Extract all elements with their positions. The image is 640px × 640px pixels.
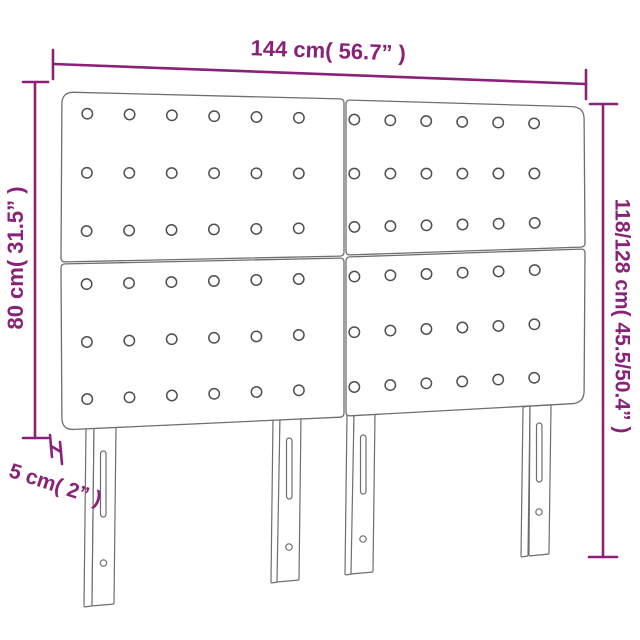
headboard-legs xyxy=(84,405,551,607)
headboard-panels xyxy=(61,92,585,429)
tufting-button xyxy=(421,378,431,388)
tufting-button xyxy=(124,392,134,402)
tufting-button xyxy=(349,327,359,337)
tufting-button xyxy=(421,168,431,178)
headboard-leg xyxy=(521,405,551,557)
tufting-button xyxy=(124,278,134,288)
dimension-depth-tick-right xyxy=(60,442,62,464)
tufting-button xyxy=(167,334,177,344)
tufting-button xyxy=(251,224,261,234)
leg-slot xyxy=(361,435,367,494)
tufting-button xyxy=(529,168,539,178)
tufting-button xyxy=(124,225,134,235)
tufting-button xyxy=(457,219,467,229)
tufting-button xyxy=(251,275,261,285)
tufting-button xyxy=(349,222,359,232)
tufting-button xyxy=(124,109,134,119)
headboard-dimension-diagram: 144 cm( 56.7” ) 80 cm( 31.5” ) 118/128 c… xyxy=(0,0,640,640)
leg-screw-hole xyxy=(100,560,106,566)
leg-screw-hole xyxy=(360,536,366,542)
tufting-button xyxy=(457,322,467,332)
leg-screw-hole xyxy=(536,509,542,515)
tufting-button xyxy=(385,168,395,178)
leg-slot xyxy=(287,438,293,499)
tufting-button xyxy=(385,115,395,125)
tufting-button xyxy=(385,325,395,335)
tufting-button xyxy=(82,168,92,178)
leg-screw-hole xyxy=(286,544,292,550)
tufting-button xyxy=(493,168,503,178)
headboard-leg xyxy=(271,415,301,583)
tufting-button xyxy=(82,109,92,119)
tufting-button xyxy=(349,114,359,124)
tufting-button xyxy=(493,321,503,331)
left-height-dimension-label: 80 cm( 31.5” ) xyxy=(3,186,28,329)
tufting-button xyxy=(251,168,261,178)
tufting-button xyxy=(166,277,176,287)
tufting-button xyxy=(457,376,467,386)
dimension-diagram-page: 144 cm( 56.7” ) 80 cm( 31.5” ) 118/128 c… xyxy=(0,0,640,640)
leg-slot xyxy=(101,451,107,517)
tufting-button xyxy=(421,116,431,126)
tufting-button xyxy=(124,168,134,178)
leg-slot xyxy=(537,423,543,482)
right-height-dimension-label: 118/128 cm( 45.5/50.4” ) xyxy=(610,199,633,434)
tufting-button xyxy=(493,374,503,384)
headboard-leg xyxy=(84,425,116,607)
tufting-button xyxy=(421,324,431,334)
tufting-button xyxy=(209,111,219,121)
tufting-button xyxy=(294,385,304,395)
tufting-button xyxy=(251,112,261,122)
tufting-button xyxy=(493,117,503,127)
tufting-button xyxy=(251,331,261,341)
tufting-button xyxy=(530,265,540,275)
tufting-button xyxy=(167,110,177,120)
tufting-button xyxy=(209,333,219,343)
tufting-button xyxy=(294,168,304,178)
headboard-leg xyxy=(345,412,375,575)
tufting-button xyxy=(82,394,92,404)
tufting-button xyxy=(294,113,304,123)
tufting-button xyxy=(421,220,431,230)
tufting-button xyxy=(294,223,304,233)
tufting-button xyxy=(385,221,395,231)
tufting-button xyxy=(493,266,503,276)
tufting-button xyxy=(251,387,261,397)
tufting-button xyxy=(209,168,219,178)
tufting-button xyxy=(421,269,431,279)
dimension-width-line xyxy=(53,64,586,84)
tufting-button xyxy=(385,380,395,390)
tufting-button xyxy=(530,218,540,228)
tufting-button xyxy=(81,279,91,289)
tufting-button xyxy=(529,319,539,329)
tufting-button xyxy=(349,271,359,281)
tufting-button xyxy=(457,268,467,278)
tufting-button xyxy=(294,330,304,340)
tufting-button xyxy=(349,168,359,178)
tufting-button xyxy=(529,373,539,383)
tufting-button xyxy=(457,117,467,127)
tufting-button xyxy=(294,274,304,284)
tufting-button xyxy=(167,168,177,178)
dimension-depth xyxy=(50,435,62,464)
tufting-button xyxy=(349,382,359,392)
tufting-button xyxy=(493,219,503,229)
tufting-button xyxy=(529,118,539,128)
tufting-button xyxy=(457,168,467,178)
tufting-button xyxy=(209,276,219,286)
width-dimension-label: 144 cm( 56.7” ) xyxy=(250,35,406,65)
tufting-button xyxy=(81,226,91,236)
tufting-button xyxy=(167,390,177,400)
tufting-button xyxy=(82,337,92,347)
tufting-button xyxy=(209,389,219,399)
tufting-button xyxy=(124,335,134,345)
tufting-button xyxy=(209,224,219,234)
tufting-button xyxy=(166,225,176,235)
tufting-button xyxy=(385,270,395,280)
